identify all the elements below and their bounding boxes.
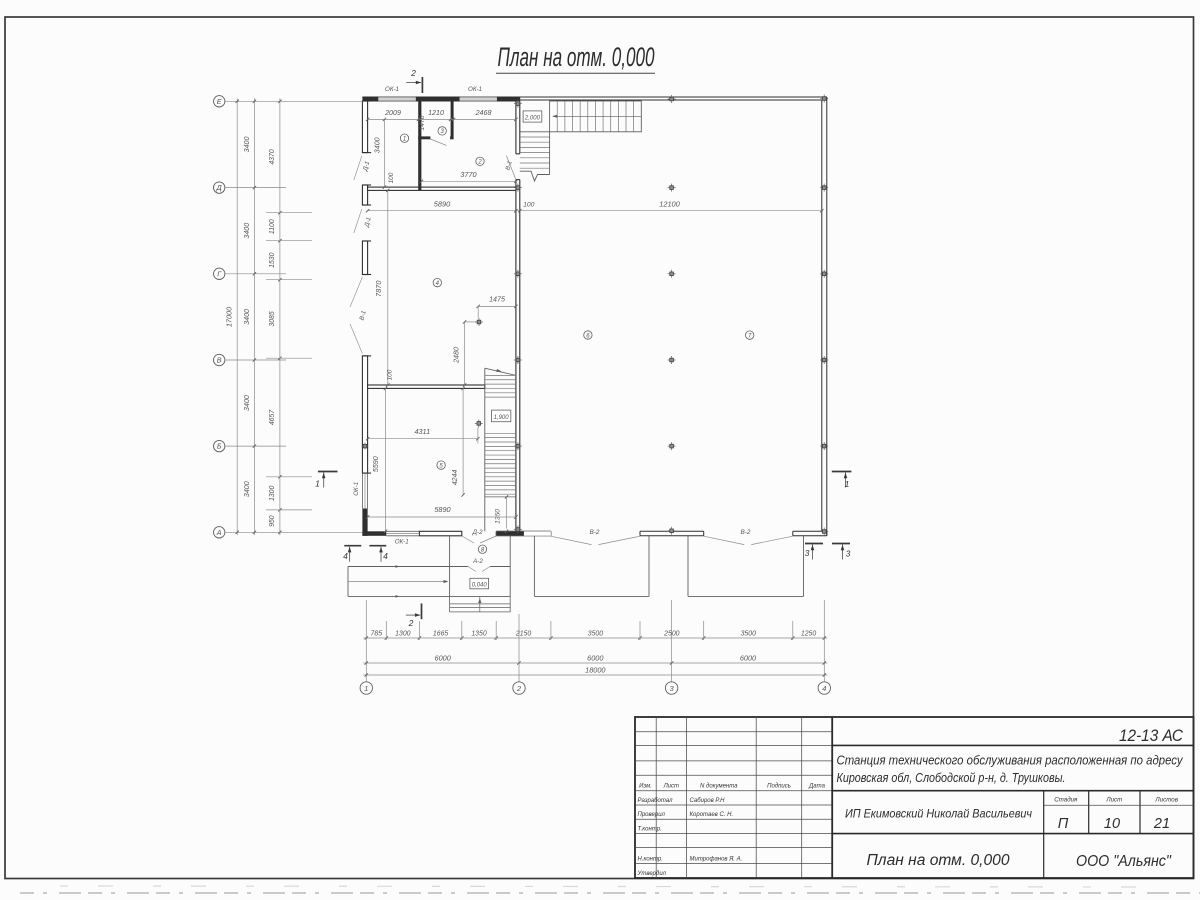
- svg-text:Листов: Листов: [1154, 797, 1178, 804]
- svg-text:Дата: Дата: [808, 783, 825, 789]
- svg-text:3770: 3770: [460, 170, 476, 179]
- svg-text:100: 100: [386, 369, 393, 380]
- svg-text:2480: 2480: [453, 347, 461, 364]
- svg-text:2500: 2500: [663, 631, 679, 638]
- svg-text:1470: 1470: [419, 115, 426, 130]
- svg-text:100: 100: [523, 201, 534, 208]
- svg-text:ОК-1: ОК-1: [395, 539, 409, 546]
- svg-text:4370: 4370: [269, 149, 276, 164]
- svg-text:3400: 3400: [243, 481, 251, 497]
- svg-text:1: 1: [315, 479, 320, 489]
- svg-text:Стадия: Стадия: [1054, 797, 1078, 804]
- svg-text:3400: 3400: [243, 137, 251, 153]
- svg-text:ОК-1: ОК-1: [353, 482, 360, 496]
- svg-text:1475: 1475: [489, 296, 505, 304]
- svg-text:N документа: N документа: [700, 783, 738, 789]
- svg-text:1,900: 1,900: [494, 415, 510, 421]
- svg-text:Утвердил: Утвердил: [637, 871, 667, 877]
- svg-text:10: 10: [1104, 816, 1120, 832]
- svg-text:В-2: В-2: [590, 529, 600, 536]
- svg-text:Н.контр.: Н.контр.: [638, 856, 663, 862]
- svg-text:1: 1: [845, 479, 850, 489]
- svg-text:Д-2: Д-2: [472, 529, 483, 536]
- svg-text:1300: 1300: [269, 486, 276, 501]
- svg-text:ОК-1: ОК-1: [468, 86, 482, 93]
- svg-text:7870: 7870: [374, 281, 383, 297]
- svg-text:1250: 1250: [801, 631, 816, 638]
- svg-text:5590: 5590: [372, 456, 380, 472]
- svg-text:3: 3: [846, 549, 851, 559]
- svg-text:В: В: [217, 356, 222, 365]
- svg-text:3400: 3400: [243, 309, 251, 325]
- svg-text:Е: Е: [217, 97, 222, 106]
- svg-text:Разработал: Разработал: [638, 798, 674, 804]
- svg-text:18000: 18000: [585, 665, 605, 674]
- svg-text:ИП Екимовский Николай Васильев: ИП Екимовский Николай Васильевич: [845, 807, 1032, 821]
- svg-text:ООО "Альянс": ООО "Альянс": [1076, 853, 1172, 870]
- svg-text:П: П: [1058, 816, 1069, 832]
- svg-text:Изм.: Изм.: [639, 783, 652, 789]
- svg-text:В-2: В-2: [741, 529, 751, 536]
- svg-text:А-2: А-2: [472, 558, 483, 565]
- svg-text:План на отм. 0,000: План на отм. 0,000: [867, 852, 1010, 869]
- svg-text:Лист: Лист: [663, 783, 679, 789]
- svg-text:2: 2: [516, 684, 522, 693]
- svg-text:3085: 3085: [269, 311, 276, 326]
- svg-text:6000: 6000: [740, 653, 756, 662]
- svg-text:6000: 6000: [587, 653, 603, 662]
- svg-text:950: 950: [269, 515, 276, 527]
- svg-text:6000: 6000: [435, 653, 451, 662]
- svg-text:А: А: [216, 528, 222, 537]
- svg-text:3500: 3500: [588, 631, 603, 638]
- svg-text:2: 2: [410, 68, 416, 78]
- svg-text:1: 1: [403, 137, 406, 143]
- svg-text:3500: 3500: [741, 631, 756, 638]
- svg-text:12100: 12100: [659, 199, 680, 208]
- svg-text:3: 3: [805, 548, 810, 558]
- svg-text:3400: 3400: [373, 137, 381, 153]
- svg-text:2,000: 2,000: [524, 115, 541, 121]
- svg-text:План на отм. 0,000: План на отм. 0,000: [498, 42, 655, 72]
- svg-text:1350: 1350: [471, 631, 486, 638]
- svg-text:1300: 1300: [395, 631, 410, 638]
- svg-text:2: 2: [408, 618, 414, 628]
- svg-text:2: 2: [477, 160, 482, 166]
- svg-text:4244: 4244: [451, 469, 459, 485]
- svg-text:Проверил: Проверил: [638, 812, 666, 818]
- svg-text:4657: 4657: [269, 409, 276, 425]
- svg-text:5890: 5890: [434, 505, 450, 514]
- svg-text:4311: 4311: [414, 427, 430, 436]
- svg-text:4: 4: [383, 551, 388, 561]
- svg-text:Лист: Лист: [1105, 797, 1122, 804]
- svg-text:Б: Б: [217, 442, 222, 451]
- svg-text:2468: 2468: [475, 109, 492, 117]
- svg-text:Кировская обл, Слободской р-н,: Кировская обл, Слободской р-н, д. Трушко…: [837, 771, 1066, 785]
- svg-text:100: 100: [388, 172, 395, 183]
- svg-text:Подпись: Подпись: [767, 783, 791, 789]
- svg-text:17000: 17000: [224, 307, 233, 327]
- svg-text:ОК-1: ОК-1: [385, 86, 399, 93]
- svg-text:5890: 5890: [434, 199, 451, 208]
- svg-text:1210: 1210: [428, 109, 444, 117]
- svg-text:4: 4: [822, 684, 826, 693]
- svg-text:1350: 1350: [495, 509, 502, 524]
- svg-text:Т.контр.: Т.контр.: [638, 826, 662, 832]
- svg-text:4: 4: [343, 551, 348, 561]
- svg-text:785: 785: [371, 631, 383, 638]
- svg-text:Сабиров Р.Н: Сабиров Р.Н: [690, 798, 726, 804]
- svg-text:2150: 2150: [515, 631, 531, 638]
- svg-text:1: 1: [364, 684, 368, 693]
- svg-text:Д: Д: [216, 183, 222, 192]
- svg-text:3400: 3400: [243, 223, 251, 239]
- svg-text:1530: 1530: [269, 252, 276, 267]
- svg-text:21: 21: [1153, 816, 1170, 832]
- svg-text:12-13 АС: 12-13 АС: [1119, 726, 1184, 745]
- svg-text:3400: 3400: [243, 395, 251, 411]
- svg-text:Митрофанов Я. А.: Митрофанов Я. А.: [690, 856, 743, 862]
- svg-text:0,040: 0,040: [472, 583, 488, 589]
- svg-text:1100: 1100: [269, 219, 276, 234]
- svg-text:1665: 1665: [433, 631, 448, 638]
- svg-text:Коротаев С. Н.: Коротаев С. Н.: [690, 812, 734, 818]
- svg-text:2009: 2009: [384, 109, 401, 117]
- svg-text:Станция технического обслужива: Станция технического обслуживания распол…: [837, 754, 1184, 768]
